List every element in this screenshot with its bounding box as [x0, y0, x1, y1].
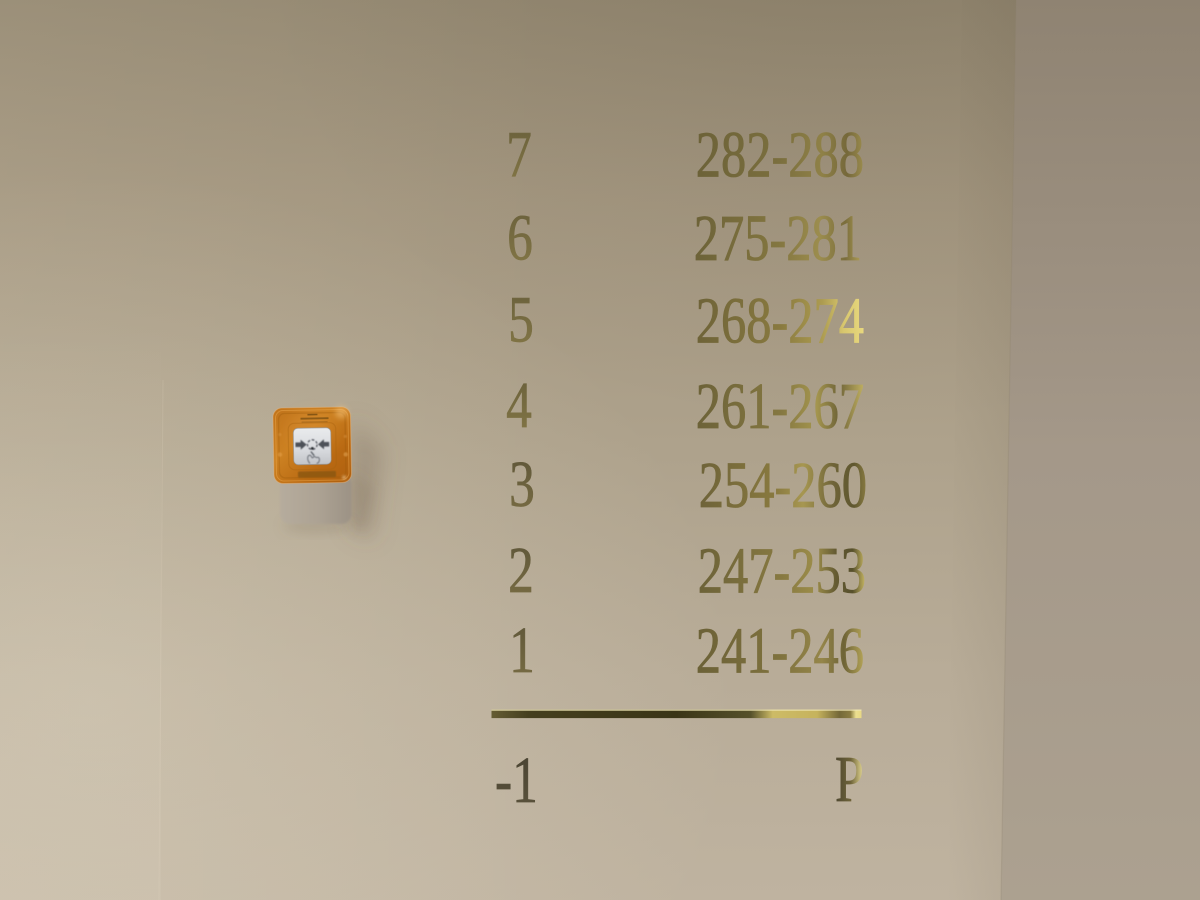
svg-text:282-288: 282-288	[696, 118, 864, 191]
svg-text:6: 6	[507, 200, 533, 274]
svg-text:2: 2	[508, 533, 534, 607]
svg-text:7: 7	[506, 117, 532, 191]
svg-text:247-253: 247-253	[698, 534, 866, 607]
svg-text:254-260: 254-260	[699, 449, 867, 522]
svg-text:P: P	[835, 742, 864, 816]
svg-text:261-267: 261-267	[696, 370, 864, 443]
svg-text:-1: -1	[495, 743, 538, 817]
svg-text:275-281: 275-281	[694, 202, 862, 275]
svg-text:3: 3	[509, 447, 535, 521]
svg-text:241-246: 241-246	[696, 614, 864, 687]
svg-text:268-274: 268-274	[696, 284, 864, 357]
svg-text:4: 4	[506, 368, 532, 442]
svg-text:1: 1	[509, 613, 535, 687]
svg-text:5: 5	[508, 282, 534, 356]
